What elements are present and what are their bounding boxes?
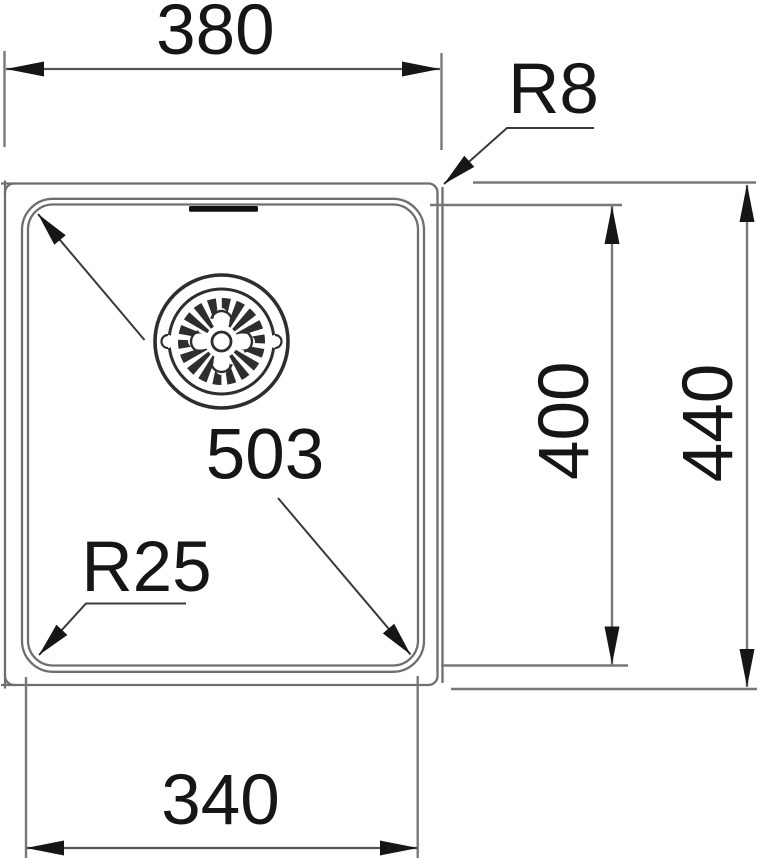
svg-text:340: 340 <box>161 761 279 840</box>
svg-text:R8: R8 <box>508 50 599 129</box>
svg-text:380: 380 <box>156 0 274 70</box>
svg-text:440: 440 <box>669 364 748 482</box>
svg-text:503: 503 <box>206 416 324 495</box>
svg-text:400: 400 <box>525 362 604 480</box>
svg-text:R25: R25 <box>81 528 211 607</box>
